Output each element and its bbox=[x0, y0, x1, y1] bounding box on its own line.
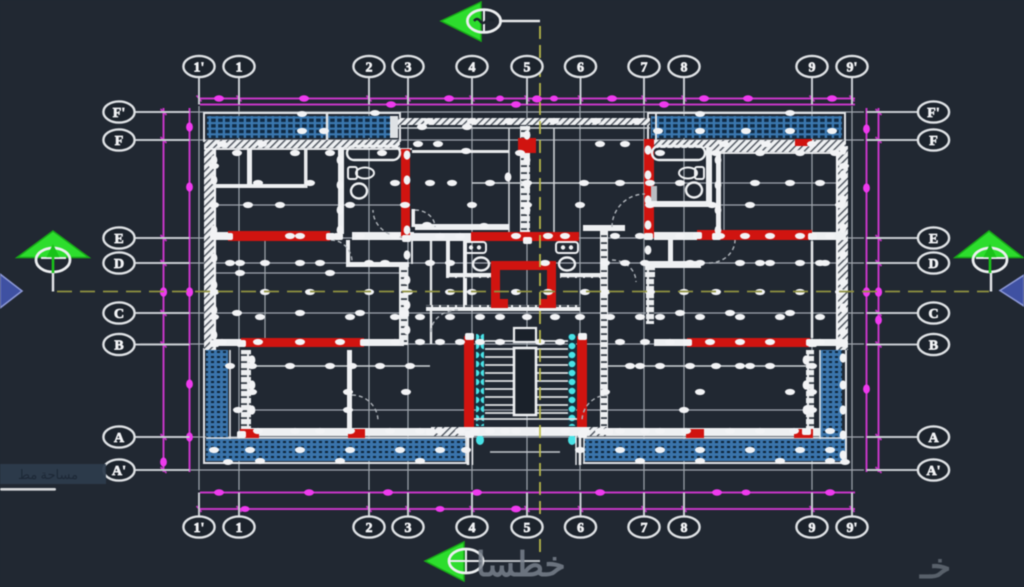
svg-text:1: 1 bbox=[236, 521, 243, 536]
svg-text:F: F bbox=[929, 134, 938, 149]
svg-text:7: 7 bbox=[641, 521, 648, 536]
svg-text:E: E bbox=[114, 232, 123, 247]
svg-text:2: 2 bbox=[366, 521, 373, 536]
svg-text:9: 9 bbox=[809, 521, 816, 536]
svg-text:2: 2 bbox=[366, 61, 373, 76]
svg-text:5: 5 bbox=[524, 61, 531, 76]
svg-text:8: 8 bbox=[681, 61, 688, 76]
svg-text:F': F' bbox=[113, 106, 125, 121]
svg-text:8: 8 bbox=[681, 521, 688, 536]
svg-text:مساحة مط: مساحة مط bbox=[18, 467, 78, 482]
svg-text:9': 9' bbox=[847, 61, 858, 76]
svg-text:6: 6 bbox=[577, 61, 584, 76]
svg-text:A': A' bbox=[112, 464, 126, 479]
svg-text:6: 6 bbox=[577, 521, 584, 536]
svg-text:9': 9' bbox=[847, 521, 858, 536]
svg-text:1: 1 bbox=[236, 61, 243, 76]
svg-text:1': 1' bbox=[194, 521, 205, 536]
svg-text:4: 4 bbox=[469, 521, 476, 536]
svg-text:خـ: خـ bbox=[919, 549, 951, 586]
svg-text:D: D bbox=[928, 257, 938, 272]
svg-text:E: E bbox=[929, 232, 938, 247]
svg-text:7: 7 bbox=[641, 61, 648, 76]
svg-text:D: D bbox=[114, 257, 124, 272]
svg-text:A: A bbox=[114, 431, 125, 446]
svg-text:خطسا: خطسا bbox=[476, 547, 566, 584]
svg-text:B: B bbox=[929, 339, 938, 354]
svg-text:9: 9 bbox=[809, 61, 816, 76]
svg-text:4: 4 bbox=[469, 61, 476, 76]
svg-text:B: B bbox=[114, 339, 123, 354]
svg-text:C: C bbox=[114, 307, 124, 322]
svg-text:F: F bbox=[115, 134, 124, 149]
svg-text:5: 5 bbox=[524, 521, 531, 536]
svg-text:C: C bbox=[928, 307, 938, 322]
svg-text:A': A' bbox=[927, 464, 941, 479]
svg-text:3: 3 bbox=[405, 61, 412, 76]
svg-text:F': F' bbox=[927, 106, 939, 121]
svg-text:A: A bbox=[928, 431, 939, 446]
svg-text:3: 3 bbox=[405, 521, 412, 536]
svg-text:1': 1' bbox=[194, 61, 205, 76]
